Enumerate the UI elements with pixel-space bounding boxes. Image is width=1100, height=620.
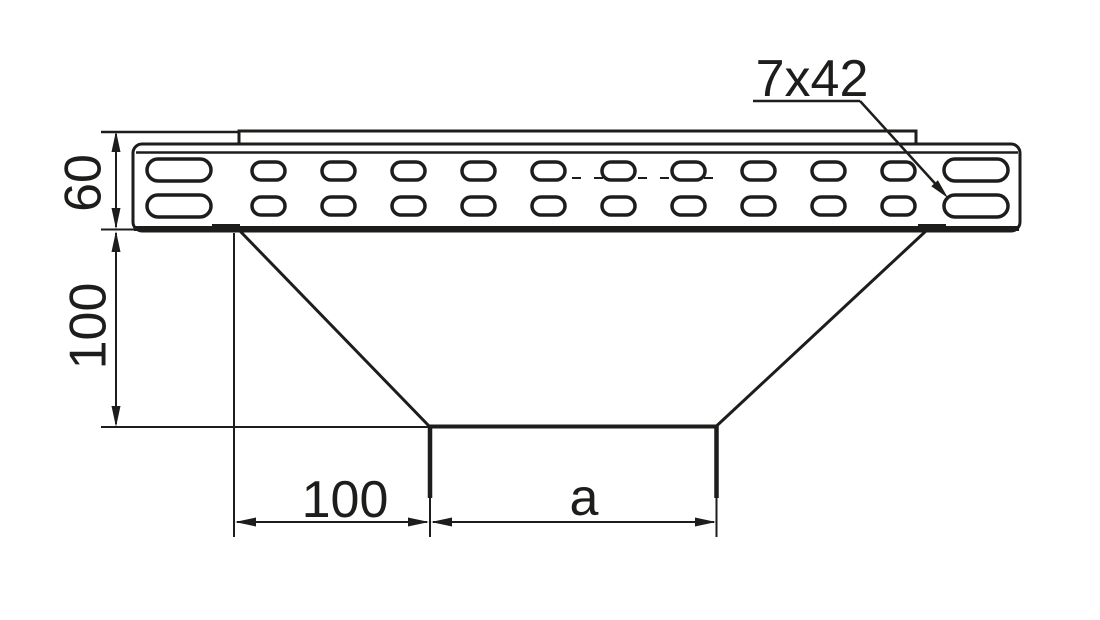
branch-right-slant	[717, 230, 928, 426]
perforation-slot	[322, 162, 355, 180]
rail-height-label: 60	[55, 154, 113, 212]
perforation-slot-long	[944, 195, 1008, 217]
branch-outline	[239, 230, 927, 498]
perforation-slot	[532, 162, 565, 180]
left-offset-label: 100	[302, 471, 389, 529]
perforation-slot-long	[944, 159, 1008, 181]
perforation-slot	[742, 162, 775, 180]
slot-size-label: 7x42	[756, 50, 869, 108]
arrow-down-icon	[112, 406, 121, 427]
perforation-slot	[322, 197, 355, 215]
perforation-slot	[532, 197, 565, 215]
perforation-slot	[882, 162, 915, 180]
junction-mark-left	[212, 224, 240, 232]
arrow-down-icon	[112, 208, 121, 229]
perforation-slot	[602, 197, 635, 215]
tray-rail-outline	[133, 144, 1020, 231]
perforation-slot-long	[147, 159, 211, 181]
drawing-ink	[101, 101, 1020, 537]
arrow-up-icon	[112, 131, 121, 152]
perforation-slot	[252, 197, 285, 215]
dimension-labels: 60 100 100 a 7x42	[55, 50, 869, 529]
perforation-slot	[672, 162, 705, 180]
perforation-slot	[392, 162, 425, 180]
arrow-up-icon	[112, 231, 121, 252]
perforation-slot	[462, 162, 495, 180]
branch-left-slant	[239, 230, 429, 426]
perforation-slot-long	[147, 195, 211, 217]
perforation-slot	[392, 197, 425, 215]
arrow-left-icon	[431, 518, 452, 527]
perforation-slot	[812, 162, 845, 180]
perforation-slot	[462, 197, 495, 215]
perforation-slot	[742, 197, 775, 215]
junction-mark-right	[918, 224, 946, 232]
perforation-slot	[882, 197, 915, 215]
branch-width-label: a	[570, 469, 599, 527]
perforation-slot	[672, 197, 705, 215]
cable-tray-tee-drawing: 60 100 100 a 7x42	[0, 0, 1100, 620]
arrow-left-icon	[235, 518, 256, 527]
perforation-slot	[812, 197, 845, 215]
branch-depth-label: 100	[60, 283, 118, 370]
arrow-right-icon	[408, 518, 429, 527]
perforation-slot	[252, 162, 285, 180]
technical-drawing-canvas: 60 100 100 a 7x42	[0, 0, 1100, 620]
arrow-right-icon	[695, 518, 716, 527]
perforation-slot	[602, 162, 635, 180]
